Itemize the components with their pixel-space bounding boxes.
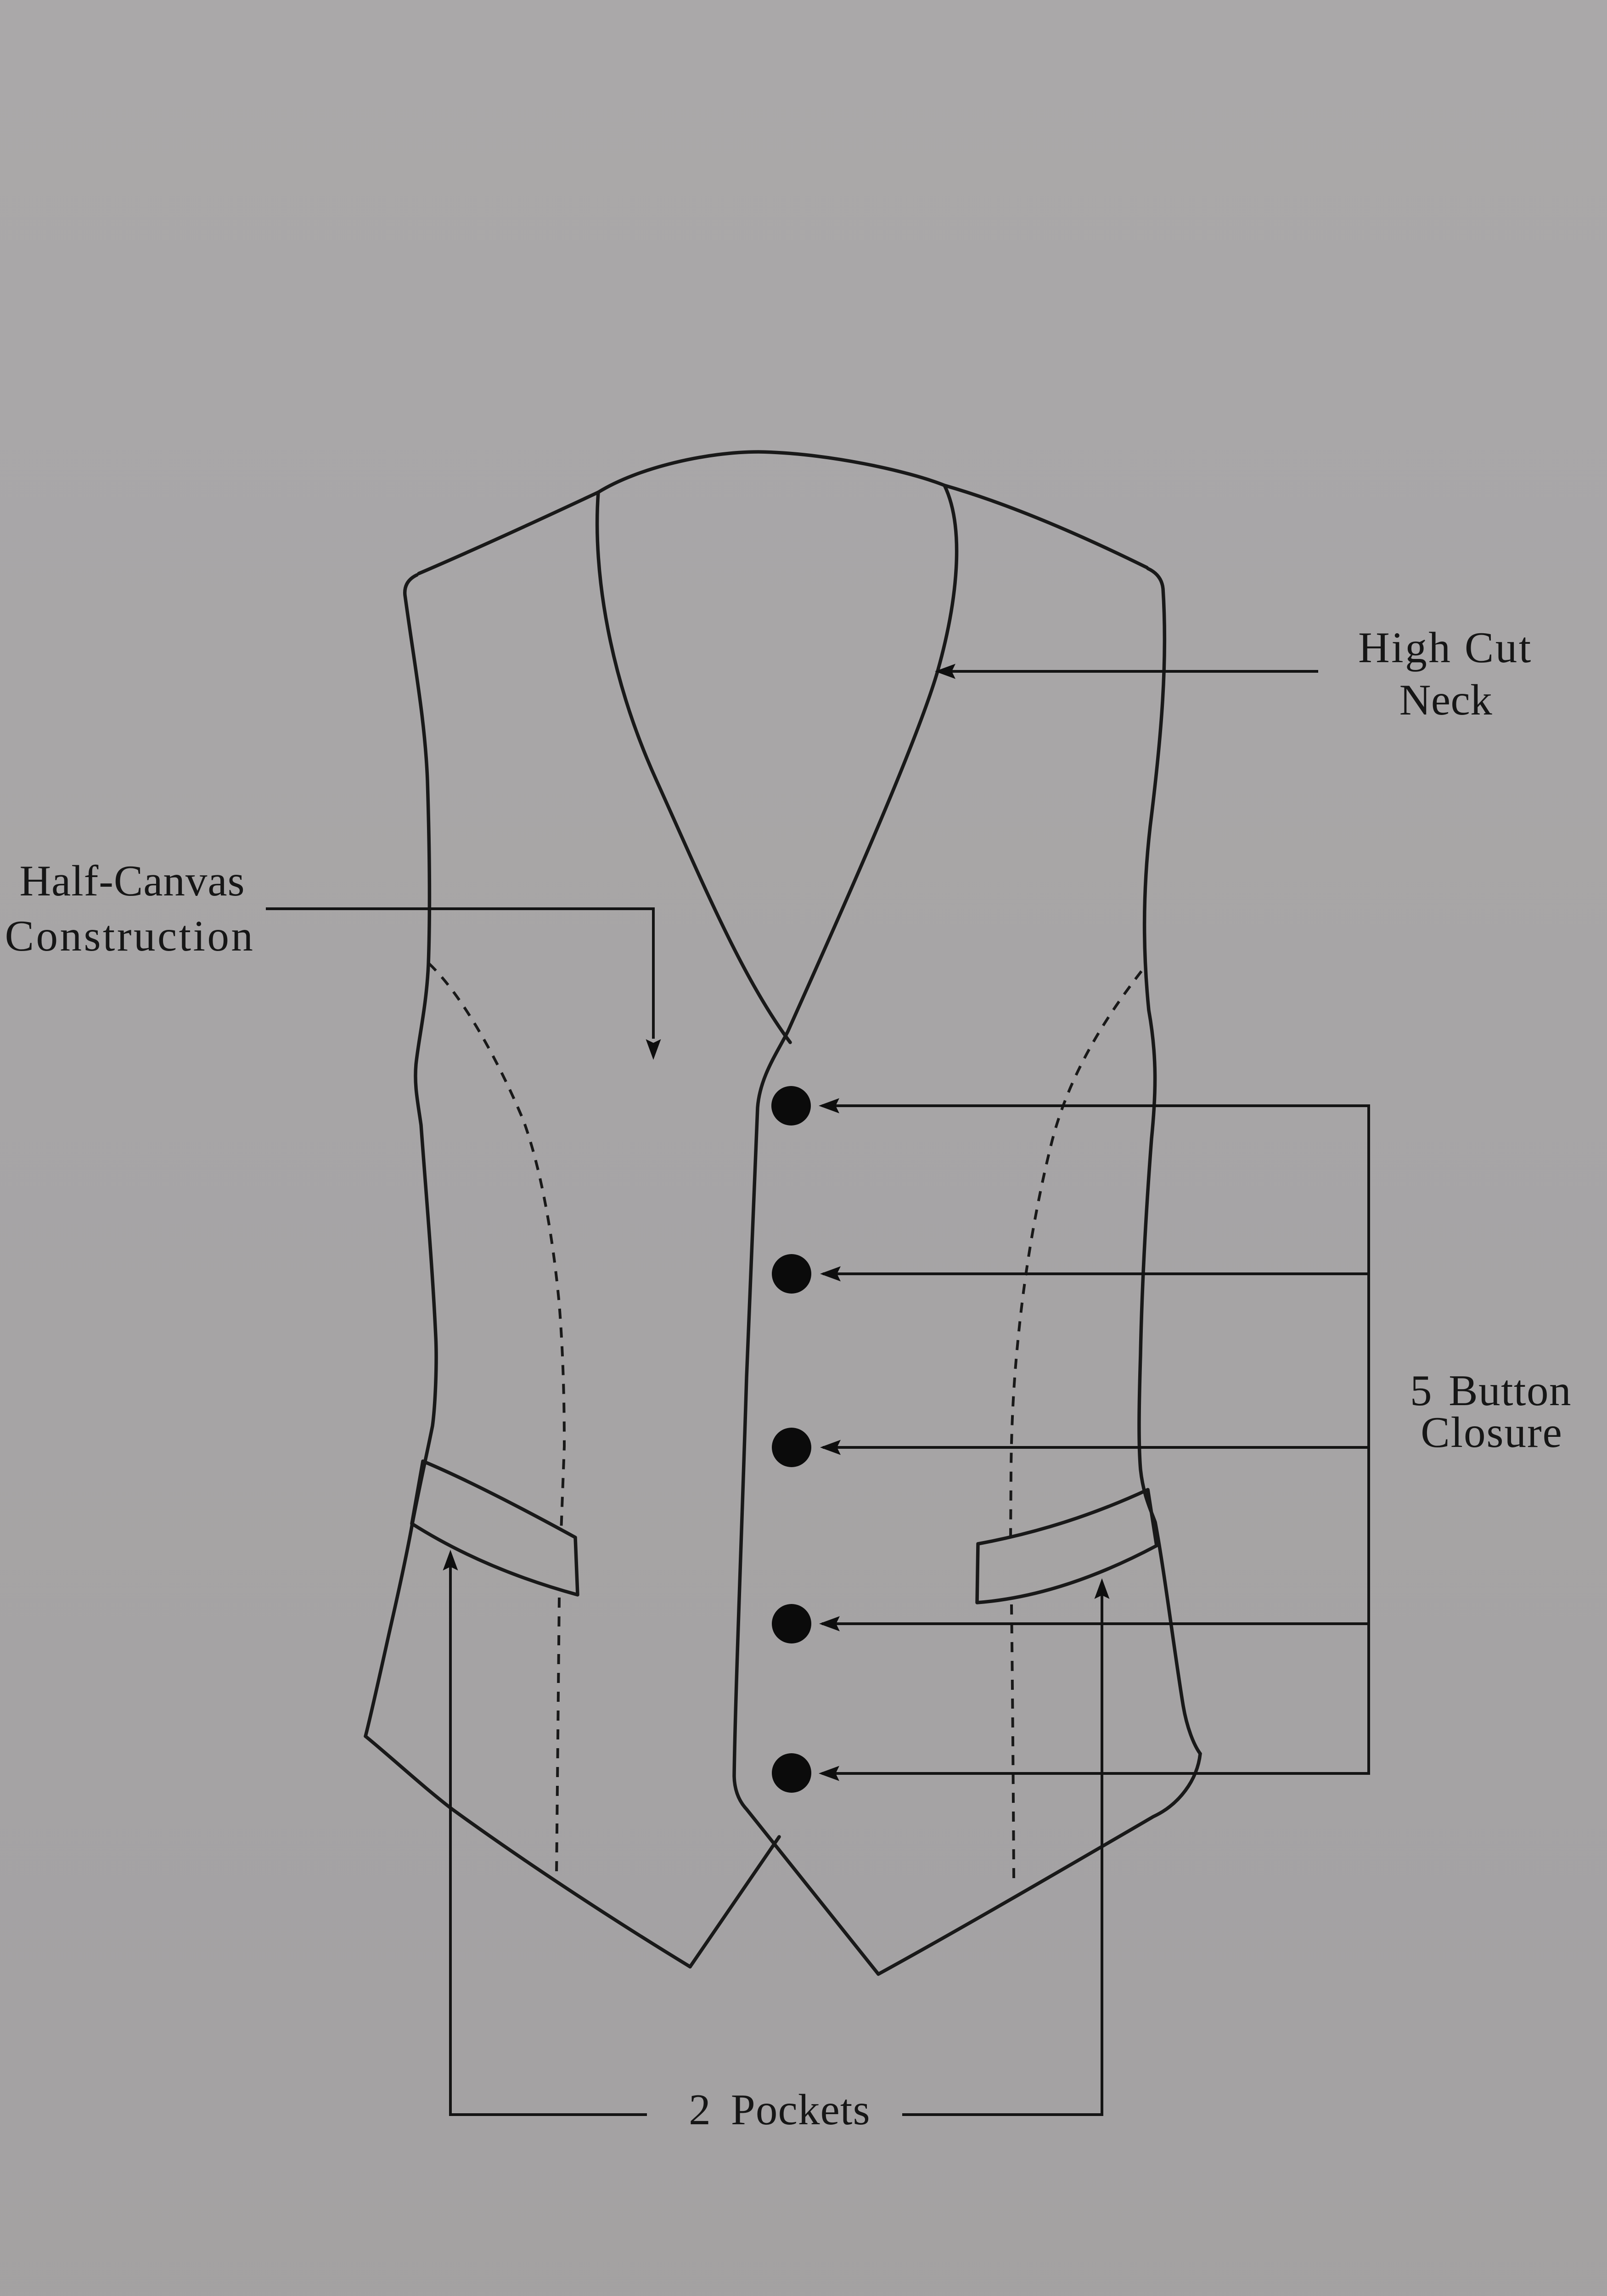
svg-text:Neck: Neck: [1399, 675, 1492, 724]
svg-text:Closure: Closure: [1421, 1408, 1563, 1457]
svg-text:2 Pockets: 2 Pockets: [689, 2085, 871, 2134]
svg-text:Construction: Construction: [5, 912, 255, 960]
svg-text:High Cut: High Cut: [1358, 623, 1533, 672]
svg-text:Half-Canvas: Half-Canvas: [19, 856, 245, 905]
